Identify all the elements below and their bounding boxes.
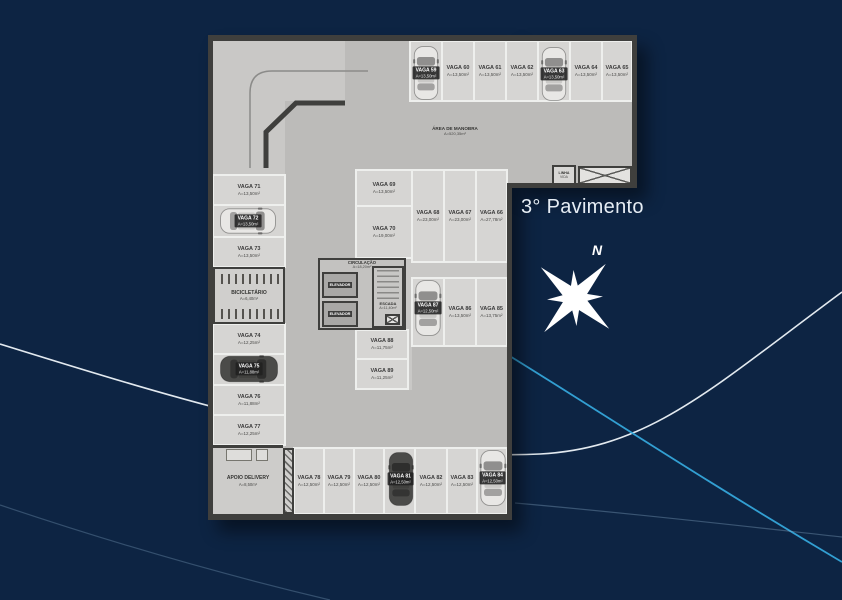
ramp-curve (208, 35, 408, 175)
room-area: A=6,40m² (240, 296, 258, 301)
spot-area: A=23,00m² (449, 217, 471, 222)
spot-area: A=12,50m² (451, 482, 473, 487)
parking-spot-vaga-61: VAGA 61 A=13,50m² (474, 41, 506, 101)
wall (632, 35, 637, 188)
spot-area: A=12,25m² (238, 431, 260, 436)
parking-spot-vaga-76: VAGA 76 A=11,88m² (213, 385, 285, 415)
spot-number: VAGA 69 (373, 182, 396, 189)
spot-area: A=13,50m² (238, 253, 260, 258)
spot-number: VAGA 73 (238, 246, 261, 253)
car-spot-label: VAGA 81A=12,50m² (387, 472, 414, 485)
spot-number: VAGA 70 (373, 226, 396, 233)
parking-spot-vaga-71: VAGA 71 A=13,50m² (213, 175, 285, 205)
spot-area: A=12,50m² (298, 482, 320, 487)
room-area: A=8,50m² (239, 482, 257, 487)
staircase: ESCADA A=11,40m² (372, 266, 404, 328)
car-icon: VAGA 63A=13,50m² (540, 44, 568, 104)
parking-spot-vaga-80: VAGA 80 A=12,50m² (354, 448, 384, 514)
spot-number: VAGA 62 (511, 65, 534, 72)
parking-spot-vaga-77: VAGA 77 A=12,25m² (213, 415, 285, 445)
spot-area: A=12,50m² (358, 482, 380, 487)
spot-area: A=13,50m² (238, 191, 260, 196)
spot-area: A=12,50m² (420, 482, 442, 487)
spot-number: VAGA 61 (479, 65, 502, 72)
counter-fixture (226, 449, 252, 461)
parking-spot-vaga-74: VAGA 74 A=12,25m² (213, 324, 285, 354)
spot-number: VAGA 71 (238, 184, 261, 191)
spot-area: A=13,50m² (606, 72, 628, 77)
parking-spot-vaga-65: VAGA 65 A=13,50m² (602, 41, 632, 101)
parking-spot-vaga-88: VAGA 88 A=11,75m² (356, 330, 408, 359)
bike-rack (221, 274, 279, 284)
compass-rose-icon (518, 240, 634, 356)
parking-spot-vaga-67: VAGA 67 A=23,00m² (444, 170, 476, 262)
car-icon: VAGA 87A=12,50m² (414, 272, 442, 344)
parking-spot-vaga-60: VAGA 60 A=13,50m² (442, 41, 474, 101)
spot-number: VAGA 76 (238, 394, 261, 401)
void-hatch-box (578, 166, 632, 185)
spot-number: VAGA 65 (606, 65, 629, 72)
spot-number: VAGA 67 (449, 210, 472, 217)
parking-spot-vaga-86: VAGA 86 A=13,50m² (444, 278, 476, 346)
parking-spot-vaga-85: VAGA 85 A=13,75m² (476, 278, 507, 346)
spot-area: A=13,50m² (479, 72, 501, 77)
car-icon: VAGA 75A=11,88m² (215, 354, 283, 384)
spot-area: A=11,88m² (238, 401, 260, 406)
spot-area: A=11,25m² (371, 375, 393, 380)
linha-vida-box: LINHA VIDA (552, 165, 576, 185)
spot-area: A=19,00m² (373, 233, 395, 238)
car-spot-label: VAGA 84A=12,50m² (479, 471, 506, 484)
parking-spot-vaga-79: VAGA 79 A=12,50m² (324, 448, 354, 514)
elevator-2: ELEVADOR (322, 301, 358, 327)
stair-void (385, 314, 400, 325)
spot-area: A=12,50m² (328, 482, 350, 487)
spot-number: VAGA 64 (575, 65, 598, 72)
escada-label: ESCADA A=11,40m² (374, 301, 402, 310)
spot-number: VAGA 86 (449, 306, 472, 313)
spot-number: VAGA 68 (417, 210, 440, 217)
wall (507, 183, 512, 520)
elevator-1: ELEVADOR (322, 272, 358, 298)
spot-number: VAGA 77 (238, 424, 261, 431)
spot-number: VAGA 79 (328, 475, 351, 482)
stair-steps (377, 270, 399, 300)
wall (208, 35, 637, 41)
elevator-label: ELEVADOR (328, 311, 353, 317)
parking-spot-vaga-68: VAGA 68 A=23,00m² (412, 170, 444, 262)
spot-area: A=13,50m² (449, 313, 471, 318)
north-label: N (592, 242, 602, 258)
aisle (356, 390, 412, 448)
manobra-label: ÁREA DE MANOBRA A=520,35m² (410, 126, 500, 137)
parking-spot-vaga-89: VAGA 89 A=11,25m² (356, 359, 408, 389)
spot-number: VAGA 89 (371, 368, 394, 375)
car-icon: VAGA 59A=13,50m² (412, 44, 440, 102)
car-icon: VAGA 72A=13,50m² (216, 206, 280, 235)
spot-area: A=23,00m² (417, 217, 439, 222)
parking-spot-vaga-83: VAGA 83 A=12,50m² (447, 448, 477, 514)
parking-spot-vaga-70: VAGA 70 A=19,00m² (356, 206, 412, 258)
parking-spot-vaga-62: VAGA 62 A=13,50m² (506, 41, 538, 101)
parking-spot-vaga-69: VAGA 69 A=13,50m² (356, 170, 412, 206)
spot-area: A=11,75m² (371, 345, 393, 350)
bicicletario-room: BICICLETÁRIO A=6,40m² (213, 267, 285, 324)
parking-spot-vaga-64: VAGA 64 A=13,50m² (570, 41, 602, 101)
spot-number: VAGA 60 (447, 65, 470, 72)
spot-number: VAGA 78 (298, 475, 321, 482)
bike-rack (221, 309, 279, 319)
parking-spot-vaga-78: VAGA 78 A=12,50m² (294, 448, 324, 514)
parking-spot-vaga-82: VAGA 82 A=12,50m² (415, 448, 447, 514)
car-spot-label: VAGA 87A=12,50m² (415, 301, 442, 314)
spot-number: VAGA 85 (480, 306, 503, 313)
elevator-label: ELEVADOR (328, 282, 353, 288)
spot-number: VAGA 80 (358, 475, 381, 482)
spot-area: A=13,50m² (511, 72, 533, 77)
car-spot-label: VAGA 72A=13,50m² (235, 214, 262, 227)
car-icon: VAGA 81A=12,50m² (387, 445, 414, 513)
spot-number: VAGA 82 (420, 475, 443, 482)
spot-number: VAGA 66 (480, 210, 503, 217)
page-title: 3° Pavimento (521, 196, 644, 219)
car-icon: VAGA 84A=12,50m² (478, 442, 507, 513)
shaft-hatch (283, 448, 294, 514)
spot-area: A=13,50m² (575, 72, 597, 77)
aisle (412, 346, 507, 448)
spot-number: VAGA 74 (238, 333, 261, 340)
spot-area: A=27,78m² (480, 217, 502, 222)
wall (208, 35, 213, 520)
sink-fixture (256, 449, 268, 461)
spot-number: VAGA 88 (371, 338, 394, 345)
spot-number: VAGA 83 (451, 475, 474, 482)
spot-area: A=13,50m² (447, 72, 469, 77)
car-spot-label: VAGA 59A=13,50m² (413, 66, 440, 79)
car-spot-label: VAGA 75A=11,88m² (236, 362, 263, 375)
spot-area: A=13,50m² (373, 189, 395, 194)
parking-spot-vaga-73: VAGA 73 A=13,50m² (213, 237, 285, 267)
wall (208, 514, 512, 520)
spot-area: A=12,25m² (238, 340, 260, 345)
car-spot-label: VAGA 63A=13,50m² (541, 67, 568, 80)
spot-area: A=13,75m² (480, 313, 502, 318)
parking-spot-vaga-66: VAGA 66 A=27,78m² (476, 170, 507, 262)
